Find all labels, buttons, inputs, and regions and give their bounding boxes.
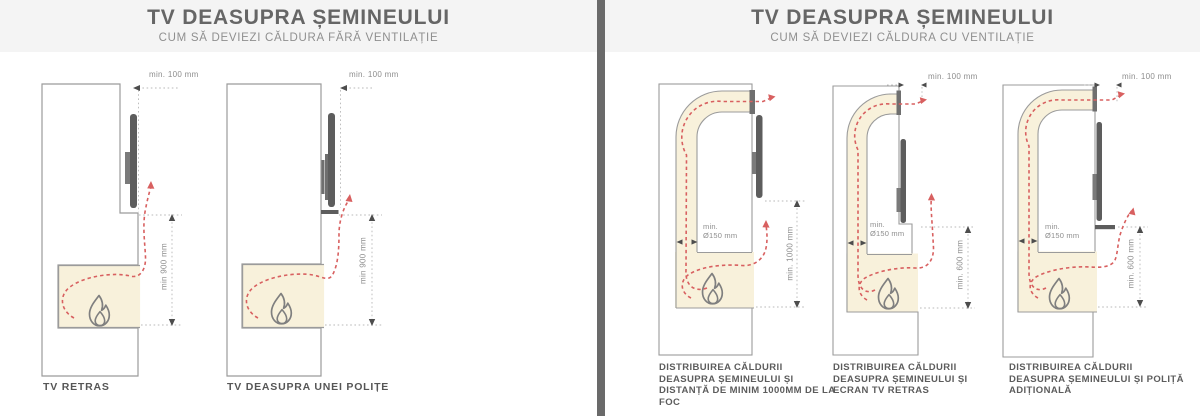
dim-label-600mm: min. 600 mm <box>1127 219 1136 309</box>
heat-arrowheads <box>762 94 775 227</box>
dim-arrow-left <box>133 85 140 91</box>
tv-bracket <box>1093 174 1097 200</box>
caption-tv-retras: TV RETRAS <box>43 381 110 393</box>
panel-divider <box>597 0 605 416</box>
dimension-side-600mm <box>920 226 975 309</box>
dimension-top-100mm <box>341 88 374 208</box>
dimension-side-900mm <box>325 214 382 326</box>
tv-bracket <box>897 188 901 212</box>
dim-label-100mm: min. 100 mm <box>928 72 978 81</box>
dim-label-900mm: min 900 mm <box>359 216 368 306</box>
tv-bracket <box>125 152 131 184</box>
diagram-duct-tv-retras <box>825 62 980 362</box>
tv-bracket <box>752 152 757 174</box>
caption-duct-shelf: DISTRIBUIREA CĂLDURII DEASUPRA ȘEMINEULU… <box>1009 362 1187 397</box>
dim-label-1000mm: min. 1000 mm <box>786 209 795 299</box>
dim-label-100mm: min. 100 mm <box>349 70 399 79</box>
caption-duct-tv-retras: DISTRIBUIREA CĂLDURII DEASUPRA ȘEMINEULU… <box>833 362 1001 397</box>
dim-label-100mm: min. 100 mm <box>149 70 199 79</box>
diagram-duct-shelf <box>1000 62 1165 362</box>
duct-diameter-label: min. Ø150 mm <box>1045 223 1079 240</box>
dim-label-100mm: min. 100 mm <box>1122 72 1172 81</box>
diagram-tv-retras <box>30 60 210 400</box>
duct-label-line2: Ø150 mm <box>870 230 904 239</box>
tv-screen <box>328 113 335 207</box>
wall-outline <box>1003 85 1095 357</box>
wall-outline <box>227 84 321 376</box>
dim-label-600mm: min. 600 mm <box>956 220 965 310</box>
tv-screen <box>901 139 907 223</box>
tv-screen <box>1097 122 1103 221</box>
wall-outline <box>42 84 138 376</box>
right-panel-subtitle: CUM SĂ DEVIEZI CĂLDURA CU VENTILAȚIE <box>605 32 1200 44</box>
shelf <box>1095 225 1115 229</box>
duct-label-line2: Ø150 mm <box>703 232 737 241</box>
tv-bracket <box>325 154 328 200</box>
caption-duct-1000mm: DISTRIBUIREA CĂLDURII DEASUPRA ȘEMINEULU… <box>659 362 837 408</box>
dimension-top-100mm <box>134 88 180 212</box>
duct-diameter-label: min. Ø150 mm <box>870 221 904 238</box>
tv-screen <box>756 115 763 198</box>
infographic-tv-above-fireplace: { "panels": { "left": { "title": "TV DEA… <box>0 0 1200 416</box>
tv-screen <box>130 114 137 208</box>
duct-diameter-label: min. Ø150 mm <box>703 223 737 240</box>
shelf <box>321 210 339 214</box>
right-panel-title: TV DEASUPRA ȘEMINEULUI <box>605 6 1200 30</box>
right-panel-header: TV DEASUPRA ȘEMINEULUI CUM SĂ DEVIEZI CĂ… <box>605 0 1200 52</box>
tv-bracket <box>322 160 325 194</box>
duct-label-line2: Ø150 mm <box>1045 232 1079 241</box>
left-panel-subtitle: CUM SĂ DEVIEZI CĂLDURA FĂRĂ VENTILAȚIE <box>0 32 597 44</box>
left-panel-header: TV DEASUPRA ȘEMINEULUI CUM SĂ DEVIEZI CĂ… <box>0 0 597 52</box>
left-panel-title: TV DEASUPRA ȘEMINEULUI <box>0 6 597 30</box>
dim-label-900mm: min 900 mm <box>160 222 169 312</box>
heat-arrowheads <box>920 97 935 200</box>
dim-arrow-left <box>340 85 347 91</box>
wall-outline <box>659 84 752 355</box>
caption-tv-above-shelf: TV DEASUPRA UNEI POLIȚE <box>227 381 389 393</box>
diagram-tv-above-shelf <box>215 60 405 400</box>
vent-cap <box>1093 87 1098 112</box>
heat-arrowheads <box>1118 91 1136 215</box>
vent-cap <box>897 91 902 116</box>
